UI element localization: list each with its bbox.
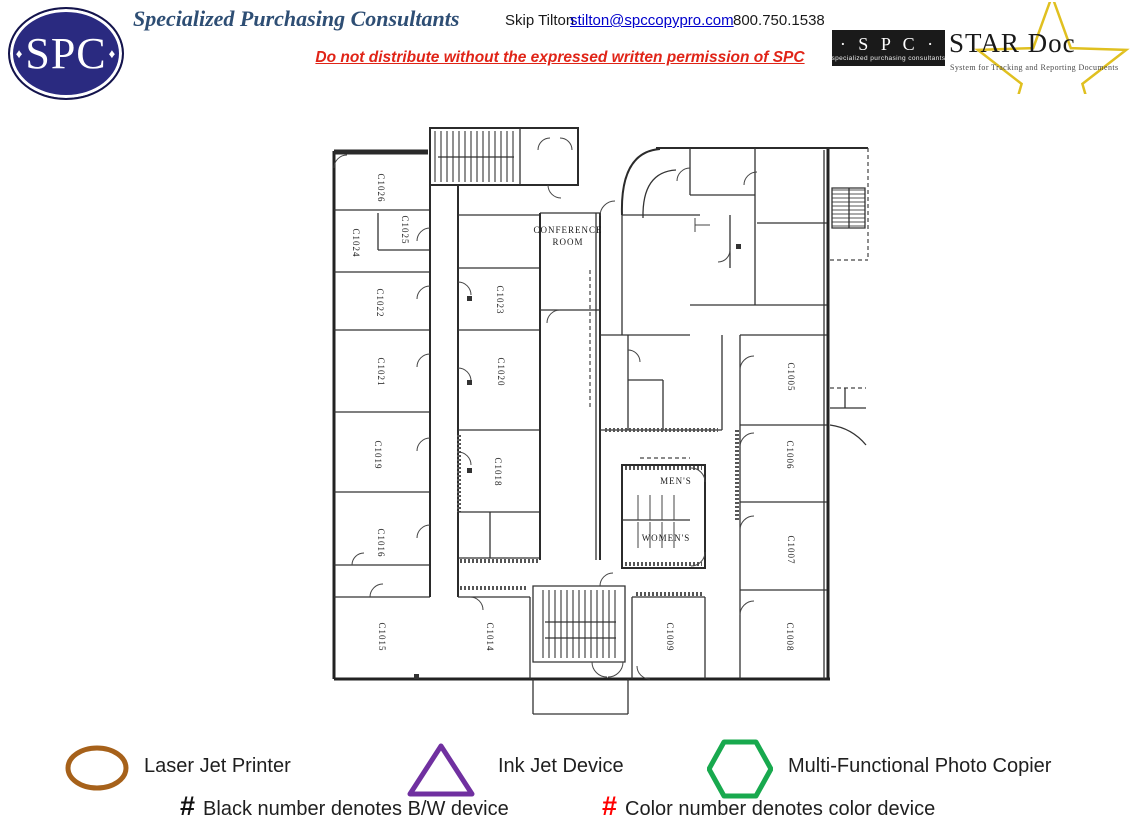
stardoc-logo: · S P C · specialized purchasing consult… bbox=[822, 2, 1140, 94]
legend-note-bw: # Black number denotes B/W device bbox=[180, 793, 509, 821]
spc-logo-letters: SPC bbox=[25, 32, 106, 76]
room-label: C1006 bbox=[785, 440, 795, 469]
legend-note-color: # Color number denotes color device bbox=[602, 793, 935, 821]
company-title: Specialized Purchasing Consultants bbox=[133, 6, 459, 32]
room-label: C1025 bbox=[400, 215, 410, 244]
room-label: C1024 bbox=[351, 228, 361, 257]
legend-label-ink-jet: Ink Jet Device bbox=[498, 755, 624, 778]
room-label: C1021 bbox=[376, 357, 386, 386]
conference-room-walls bbox=[540, 213, 600, 560]
room-label: C1007 bbox=[786, 535, 796, 564]
spc-logo-text: ♦ SPC ♦ bbox=[16, 32, 117, 76]
room-label: C1018 bbox=[493, 457, 503, 486]
ink-jet-triangle-icon bbox=[406, 741, 476, 799]
legend-label-laser-jet: Laser Jet Printer bbox=[144, 755, 291, 778]
stardoc-spc-text: · S P C · bbox=[840, 35, 937, 53]
room-label: C1014 bbox=[485, 622, 495, 651]
room-label: C1008 bbox=[785, 622, 795, 651]
room-label: C1026 bbox=[376, 173, 386, 202]
right-wing-top-walls bbox=[622, 148, 827, 335]
right-rooms-walls bbox=[737, 335, 827, 679]
contact-phone: 800.750.1538 bbox=[733, 12, 825, 29]
red-hash-icon: # bbox=[602, 793, 617, 820]
laser-jet-oval-icon bbox=[64, 744, 130, 792]
legend-label-photo-copier: Multi-Functional Photo Copier bbox=[788, 755, 1051, 778]
legend-note-color-text: Color number denotes color device bbox=[625, 798, 935, 821]
room-label: C1009 bbox=[665, 622, 675, 651]
room-label: C1022 bbox=[375, 288, 385, 317]
stairwell-hatching bbox=[434, 128, 865, 662]
stardoc-tagline: System for Tracking and Reporting Docume… bbox=[950, 63, 1119, 72]
room-label: C1005 bbox=[786, 362, 796, 391]
room-label: C1016 bbox=[376, 528, 386, 557]
diamond-icon: ♦ bbox=[109, 47, 117, 60]
room-label: C1023 bbox=[495, 285, 505, 314]
restroom-walls bbox=[622, 458, 705, 568]
contact-name: Skip Tilton bbox=[505, 12, 574, 29]
legend-note-bw-text: Black number denotes B/W device bbox=[203, 798, 509, 821]
room-label: MEN'S bbox=[660, 476, 692, 486]
diamond-icon: ♦ bbox=[16, 47, 24, 60]
stardoc-spc-subtext: specialized purchasing consultants bbox=[831, 55, 945, 62]
floorplan-drawing: C1026C1025C1024C1022C1021C1019C1016C1015… bbox=[328, 118, 878, 720]
room-label: C1020 bbox=[496, 357, 506, 386]
contact-email-link[interactable]: stilton@spccopypro.com bbox=[570, 12, 734, 29]
photo-copier-hexagon-icon bbox=[707, 739, 773, 799]
room-label: C1015 bbox=[377, 622, 387, 651]
spc-oval-logo: ♦ SPC ♦ bbox=[8, 7, 124, 100]
room-label: C1019 bbox=[373, 440, 383, 469]
distribution-notice: Do not distribute without the expressed … bbox=[300, 49, 820, 67]
room-label: CONFERENCE bbox=[533, 225, 602, 235]
document-page: ♦ SPC ♦ Specialized Purchasing Consultan… bbox=[0, 0, 1140, 828]
middle-column-walls bbox=[458, 213, 540, 679]
room-label: WOMEN'S bbox=[642, 533, 691, 543]
closet-block-walls bbox=[600, 335, 722, 430]
black-hash-icon: # bbox=[180, 793, 195, 820]
room-label: ROOM bbox=[552, 237, 583, 247]
stardoc-spc-box: · S P C · specialized purchasing consult… bbox=[832, 30, 945, 66]
stardoc-name: STAR Doc bbox=[949, 28, 1076, 59]
